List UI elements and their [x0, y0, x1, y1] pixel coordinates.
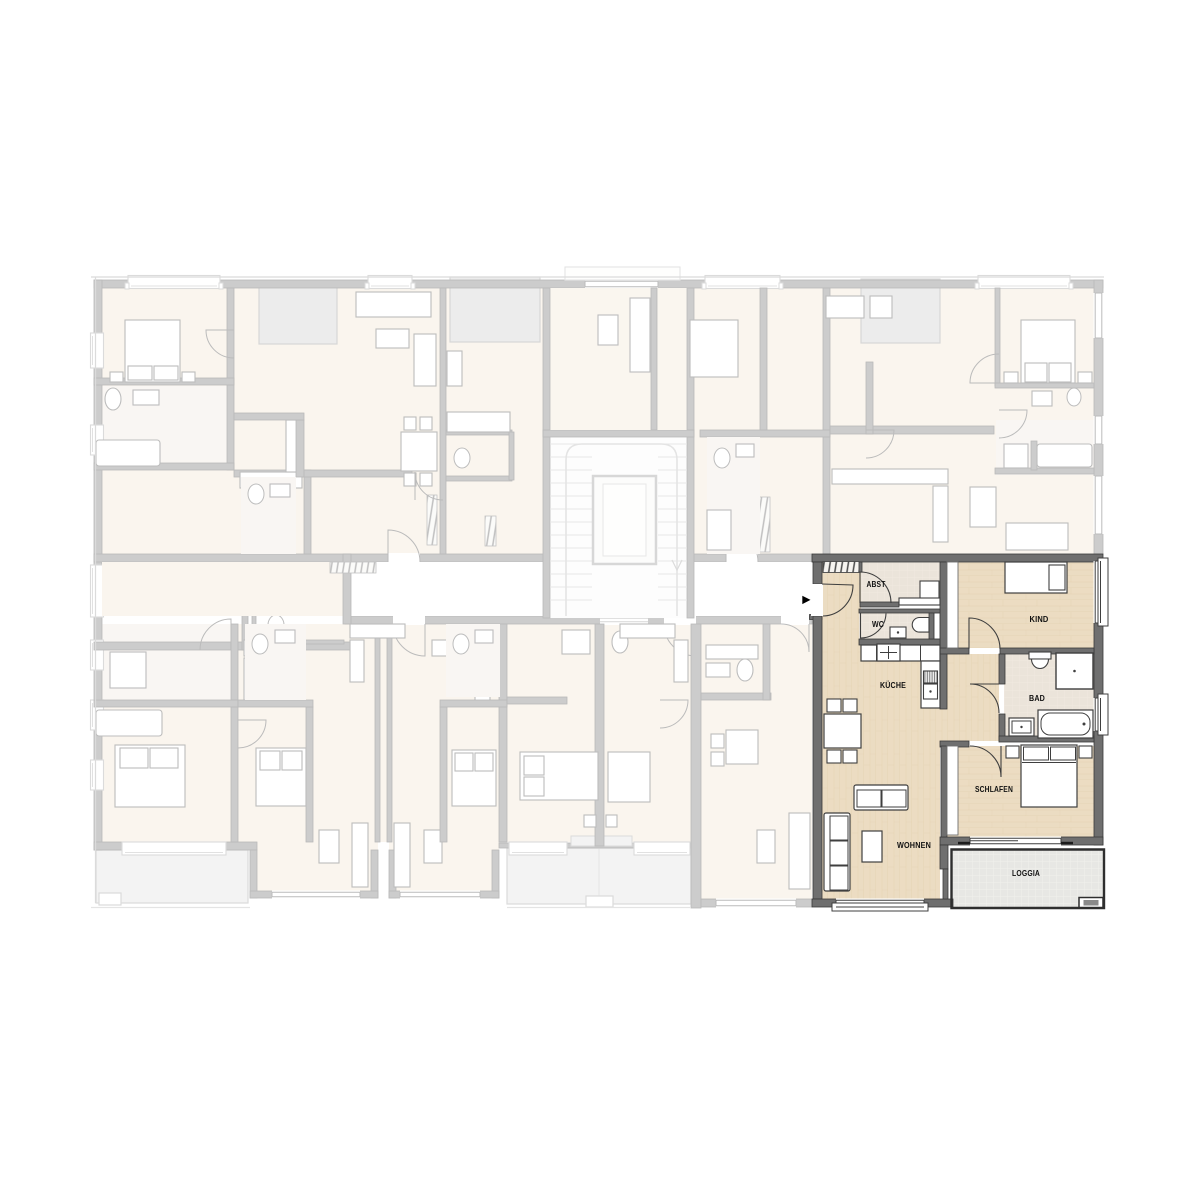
- svg-text:WC: WC: [872, 620, 884, 629]
- svg-text:LOGGIA: LOGGIA: [1012, 869, 1040, 878]
- svg-text:ABST: ABST: [867, 580, 886, 589]
- svg-text:WOHNEN: WOHNEN: [897, 841, 931, 850]
- svg-text:BAD: BAD: [1029, 694, 1045, 703]
- svg-text:KIND: KIND: [1030, 615, 1049, 624]
- svg-text:SCHLAFEN: SCHLAFEN: [975, 785, 1013, 794]
- svg-text:KÜCHE: KÜCHE: [880, 680, 906, 690]
